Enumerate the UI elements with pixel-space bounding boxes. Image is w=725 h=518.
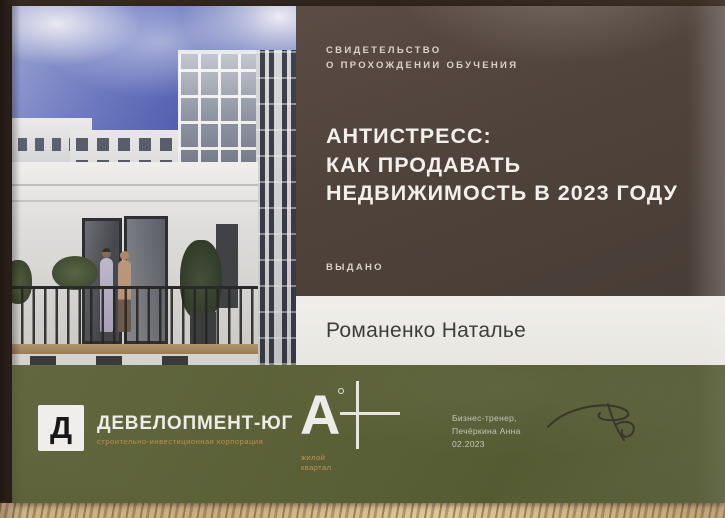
terrace-deck xyxy=(12,344,258,354)
course-title: АНТИСТРЕСС: КАК ПРОДАВАТЬ НЕДВИЖИМОСТЬ В… xyxy=(326,122,678,208)
penthouse-terrace xyxy=(12,162,258,365)
trainer-date: 02.2023 xyxy=(452,438,521,451)
aplus-caption-line1: жилой xyxy=(301,453,331,463)
plus-vertical-line xyxy=(356,381,359,449)
parapet-line xyxy=(12,184,258,186)
course-title-line2: КАК ПРОДАВАТЬ xyxy=(326,151,678,180)
certificate-type: СВИДЕТЕЛЬСТВО О ПРОХОЖДЕНИИ ОБУЧЕНИЯ xyxy=(326,43,518,73)
aplus-caption: жилой квартал xyxy=(301,453,331,473)
registered-mark-icon xyxy=(338,388,344,394)
recipient-name: Романенко Наталье xyxy=(326,319,526,343)
certificate: СВИДЕТЕЛЬСТВО О ПРОХОЖДЕНИИ ОБУЧЕНИЯ АНТ… xyxy=(12,6,725,503)
recipient-name-strip: Романенко Наталье xyxy=(296,296,725,365)
wooden-table-surface xyxy=(0,501,725,518)
course-title-line3: НЕДВИЖИМОСТЬ В 2023 ГОДУ xyxy=(326,179,678,208)
developer-logo-glyph-icon: Д xyxy=(50,412,72,443)
parapet-line xyxy=(12,200,258,202)
trainer-name: Печёркина Анна xyxy=(452,425,521,438)
developer-logo-text: ДЕВЕЛОПМЕНТ-ЮГ строительно-инвестиционна… xyxy=(97,405,293,446)
signature-scribble xyxy=(540,393,670,453)
window xyxy=(162,356,188,365)
plant xyxy=(52,256,98,290)
photographed-certificate-scene: СВИДЕТЕЛЬСТВО О ПРОХОЖДЕНИИ ОБУЧЕНИЯ АНТ… xyxy=(0,0,725,518)
certificate-header-panel: СВИДЕТЕЛЬСТВО О ПРОХОЖДЕНИИ ОБУЧЕНИЯ АНТ… xyxy=(296,6,725,296)
certificate-type-line1: СВИДЕТЕЛЬСТВО xyxy=(326,43,518,58)
aplus-letter: А xyxy=(300,387,340,443)
aplus-quarter-logo: А жилой квартал xyxy=(300,387,410,491)
issued-label: ВЫДАНО xyxy=(326,262,384,273)
developer-logo: Д ДЕВЕЛОПМЕНТ-ЮГ строительно-инвестицион… xyxy=(38,405,293,451)
developer-name: ДЕВЕЛОПМЕНТ-ЮГ xyxy=(97,414,293,433)
trainer-block: Бизнес-тренер, Печёркина Анна 02.2023 xyxy=(452,412,521,451)
course-title-line1: АНТИСТРЕСС: xyxy=(326,122,678,151)
window xyxy=(96,356,122,365)
right-tower xyxy=(256,50,296,365)
certificate-type-line2: О ПРОХОЖДЕНИИ ОБУЧЕНИЯ xyxy=(326,58,518,73)
balcony-railing xyxy=(12,286,258,349)
trainer-role: Бизнес-тренер, xyxy=(452,412,521,425)
aplus-caption-line2: квартал xyxy=(301,463,331,473)
plus-horizontal-line xyxy=(340,412,400,415)
lower-floor xyxy=(12,354,258,365)
window xyxy=(30,356,56,365)
developer-subtitle: строительно-инвестиционная корпорация xyxy=(97,437,293,446)
building-photo xyxy=(12,6,296,365)
footer-band: Д ДЕВЕЛОПМЕНТ-ЮГ строительно-инвестицион… xyxy=(12,365,725,503)
developer-logo-mark: Д xyxy=(38,405,84,451)
